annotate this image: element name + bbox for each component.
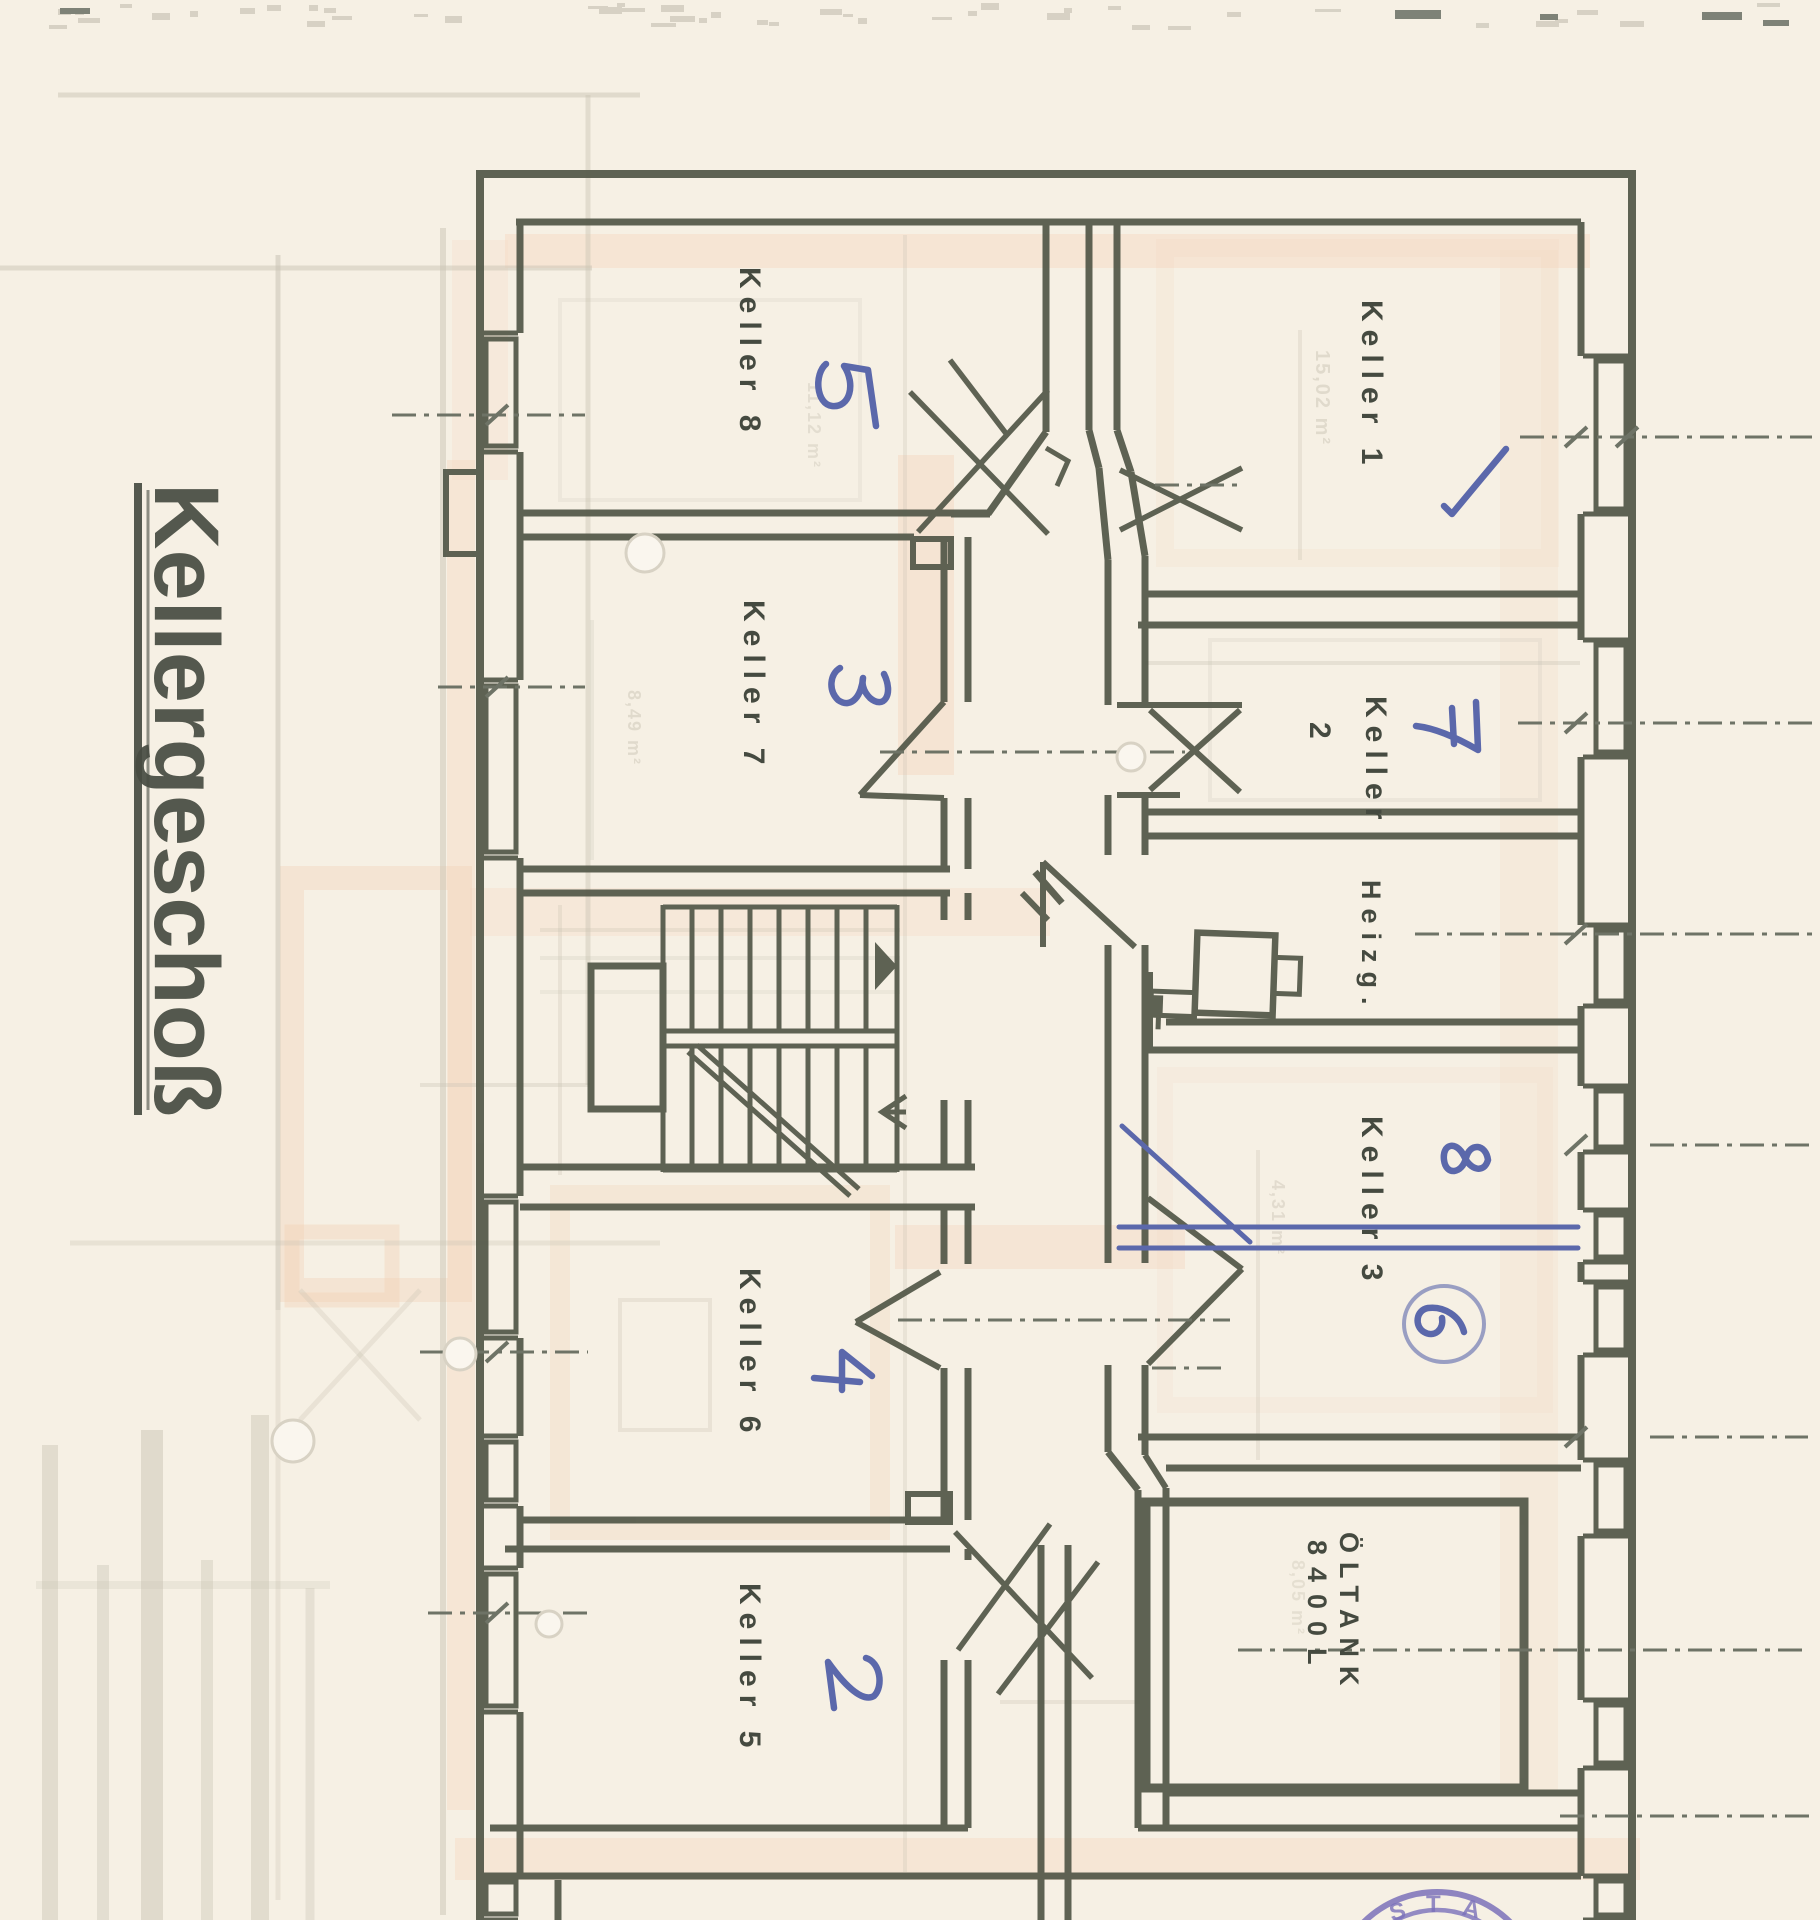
svg-text:Heizg.: Heizg. — [1356, 880, 1386, 1014]
svg-text:Keller 7: Keller 7 — [737, 600, 770, 772]
svg-text:Keller 3: Keller 3 — [1355, 1116, 1388, 1288]
svg-text:15,02 m²: 15,02 m² — [1311, 350, 1333, 446]
svg-text:Keller 6: Keller 6 — [733, 1268, 766, 1440]
svg-text:8,49 m²: 8,49 m² — [624, 690, 644, 766]
svg-text:4,31 m²: 4,31 m² — [1268, 1180, 1288, 1256]
svg-text:Keller 5: Keller 5 — [733, 1583, 766, 1755]
svg-text:Keller 1: Keller 1 — [1355, 300, 1388, 472]
svg-text:T: T — [1426, 1891, 1441, 1918]
svg-text:8400L: 8400L — [1302, 1540, 1332, 1677]
svg-text:Kellergeschoß: Kellergeschoß — [135, 483, 237, 1117]
svg-text:ÖLTANK: ÖLTANK — [1334, 1532, 1364, 1694]
svg-text:Keller: Keller — [1359, 696, 1392, 827]
svg-text:2: 2 — [1303, 722, 1336, 739]
svg-text:Keller 8: Keller 8 — [733, 267, 766, 439]
